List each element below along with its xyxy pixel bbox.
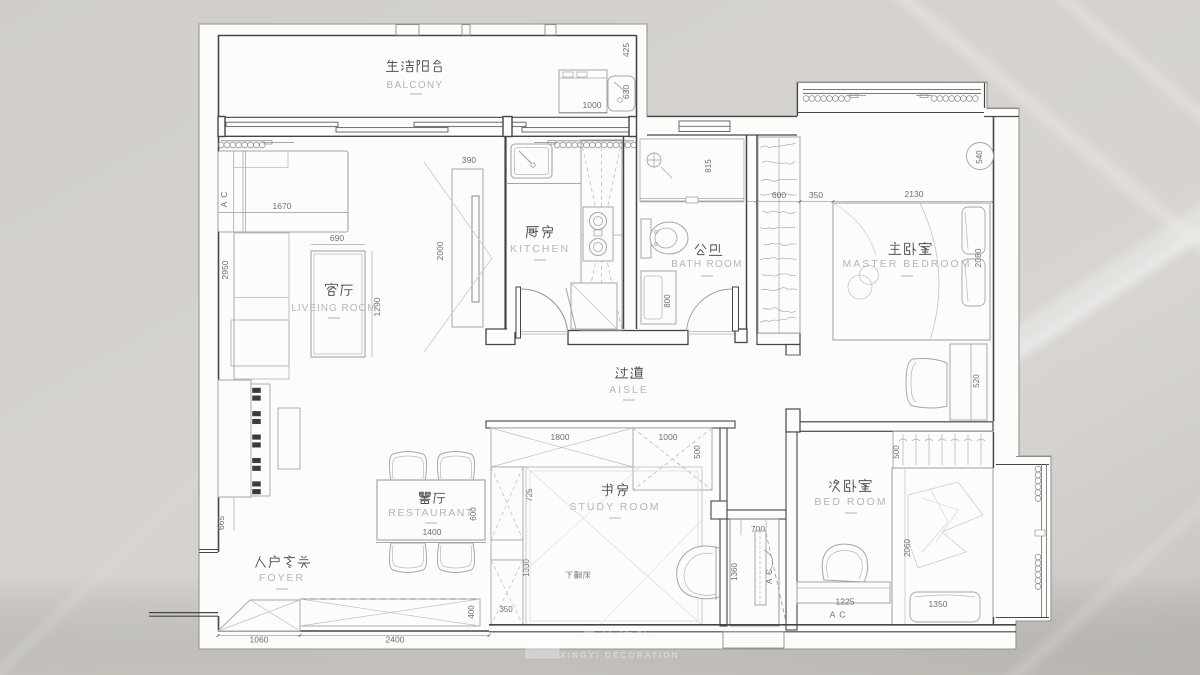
svg-text:520: 520 [972, 374, 981, 388]
svg-text:1000: 1000 [659, 432, 678, 442]
svg-text:540: 540 [975, 150, 984, 164]
svg-text:MASTER BEDROOM: MASTER BEDROOM [843, 258, 972, 270]
svg-text:KITCHEN: KITCHEN [510, 243, 570, 255]
svg-text:2080: 2080 [973, 248, 983, 267]
svg-text:390: 390 [462, 155, 476, 165]
svg-text:350: 350 [499, 605, 513, 614]
svg-text:2130: 2130 [905, 189, 924, 199]
svg-text:2000: 2000 [435, 241, 445, 260]
svg-text:BALCONY: BALCONY [387, 80, 444, 91]
svg-text:2060: 2060 [903, 539, 912, 557]
svg-text:1360: 1360 [730, 563, 739, 581]
svg-text:AISLE: AISLE [609, 384, 649, 396]
svg-text:A C: A C [765, 568, 774, 584]
svg-text:600: 600 [772, 190, 786, 200]
svg-text:1350: 1350 [929, 599, 948, 609]
svg-text:425: 425 [621, 43, 631, 57]
svg-text:A C: A C [830, 610, 847, 620]
svg-text:1225: 1225 [836, 597, 855, 607]
svg-text:XINGYI DECORATION: XINGYI DECORATION [560, 651, 679, 660]
svg-text:1670: 1670 [273, 201, 292, 211]
svg-text:630: 630 [621, 85, 631, 99]
svg-text:LIVEING ROOM: LIVEING ROOM [291, 303, 376, 314]
svg-text:1330: 1330 [522, 559, 531, 577]
svg-text:665: 665 [216, 516, 226, 530]
svg-text:350: 350 [809, 190, 823, 200]
svg-text:2400: 2400 [386, 635, 405, 645]
svg-text:1060: 1060 [250, 635, 269, 645]
svg-text:690: 690 [330, 233, 344, 243]
svg-text:600: 600 [469, 507, 478, 521]
svg-text:FOYER: FOYER [259, 572, 305, 584]
svg-text:BED ROOM: BED ROOM [814, 496, 887, 508]
svg-text:RESTAURANT: RESTAURANT [388, 507, 473, 519]
svg-text:STUDY ROOM: STUDY ROOM [570, 501, 661, 513]
svg-text:1000: 1000 [583, 100, 602, 110]
svg-text:500: 500 [892, 445, 901, 459]
svg-text:BATH ROOM: BATH ROOM [671, 259, 743, 270]
svg-text:400: 400 [467, 605, 476, 619]
svg-text:2950: 2950 [220, 260, 230, 279]
svg-text:815: 815 [704, 159, 713, 173]
svg-text:500: 500 [693, 445, 702, 459]
svg-text:1800: 1800 [551, 432, 570, 442]
svg-text:800: 800 [663, 294, 672, 308]
svg-text:1400: 1400 [423, 527, 442, 537]
svg-text:A C: A C [219, 191, 229, 208]
